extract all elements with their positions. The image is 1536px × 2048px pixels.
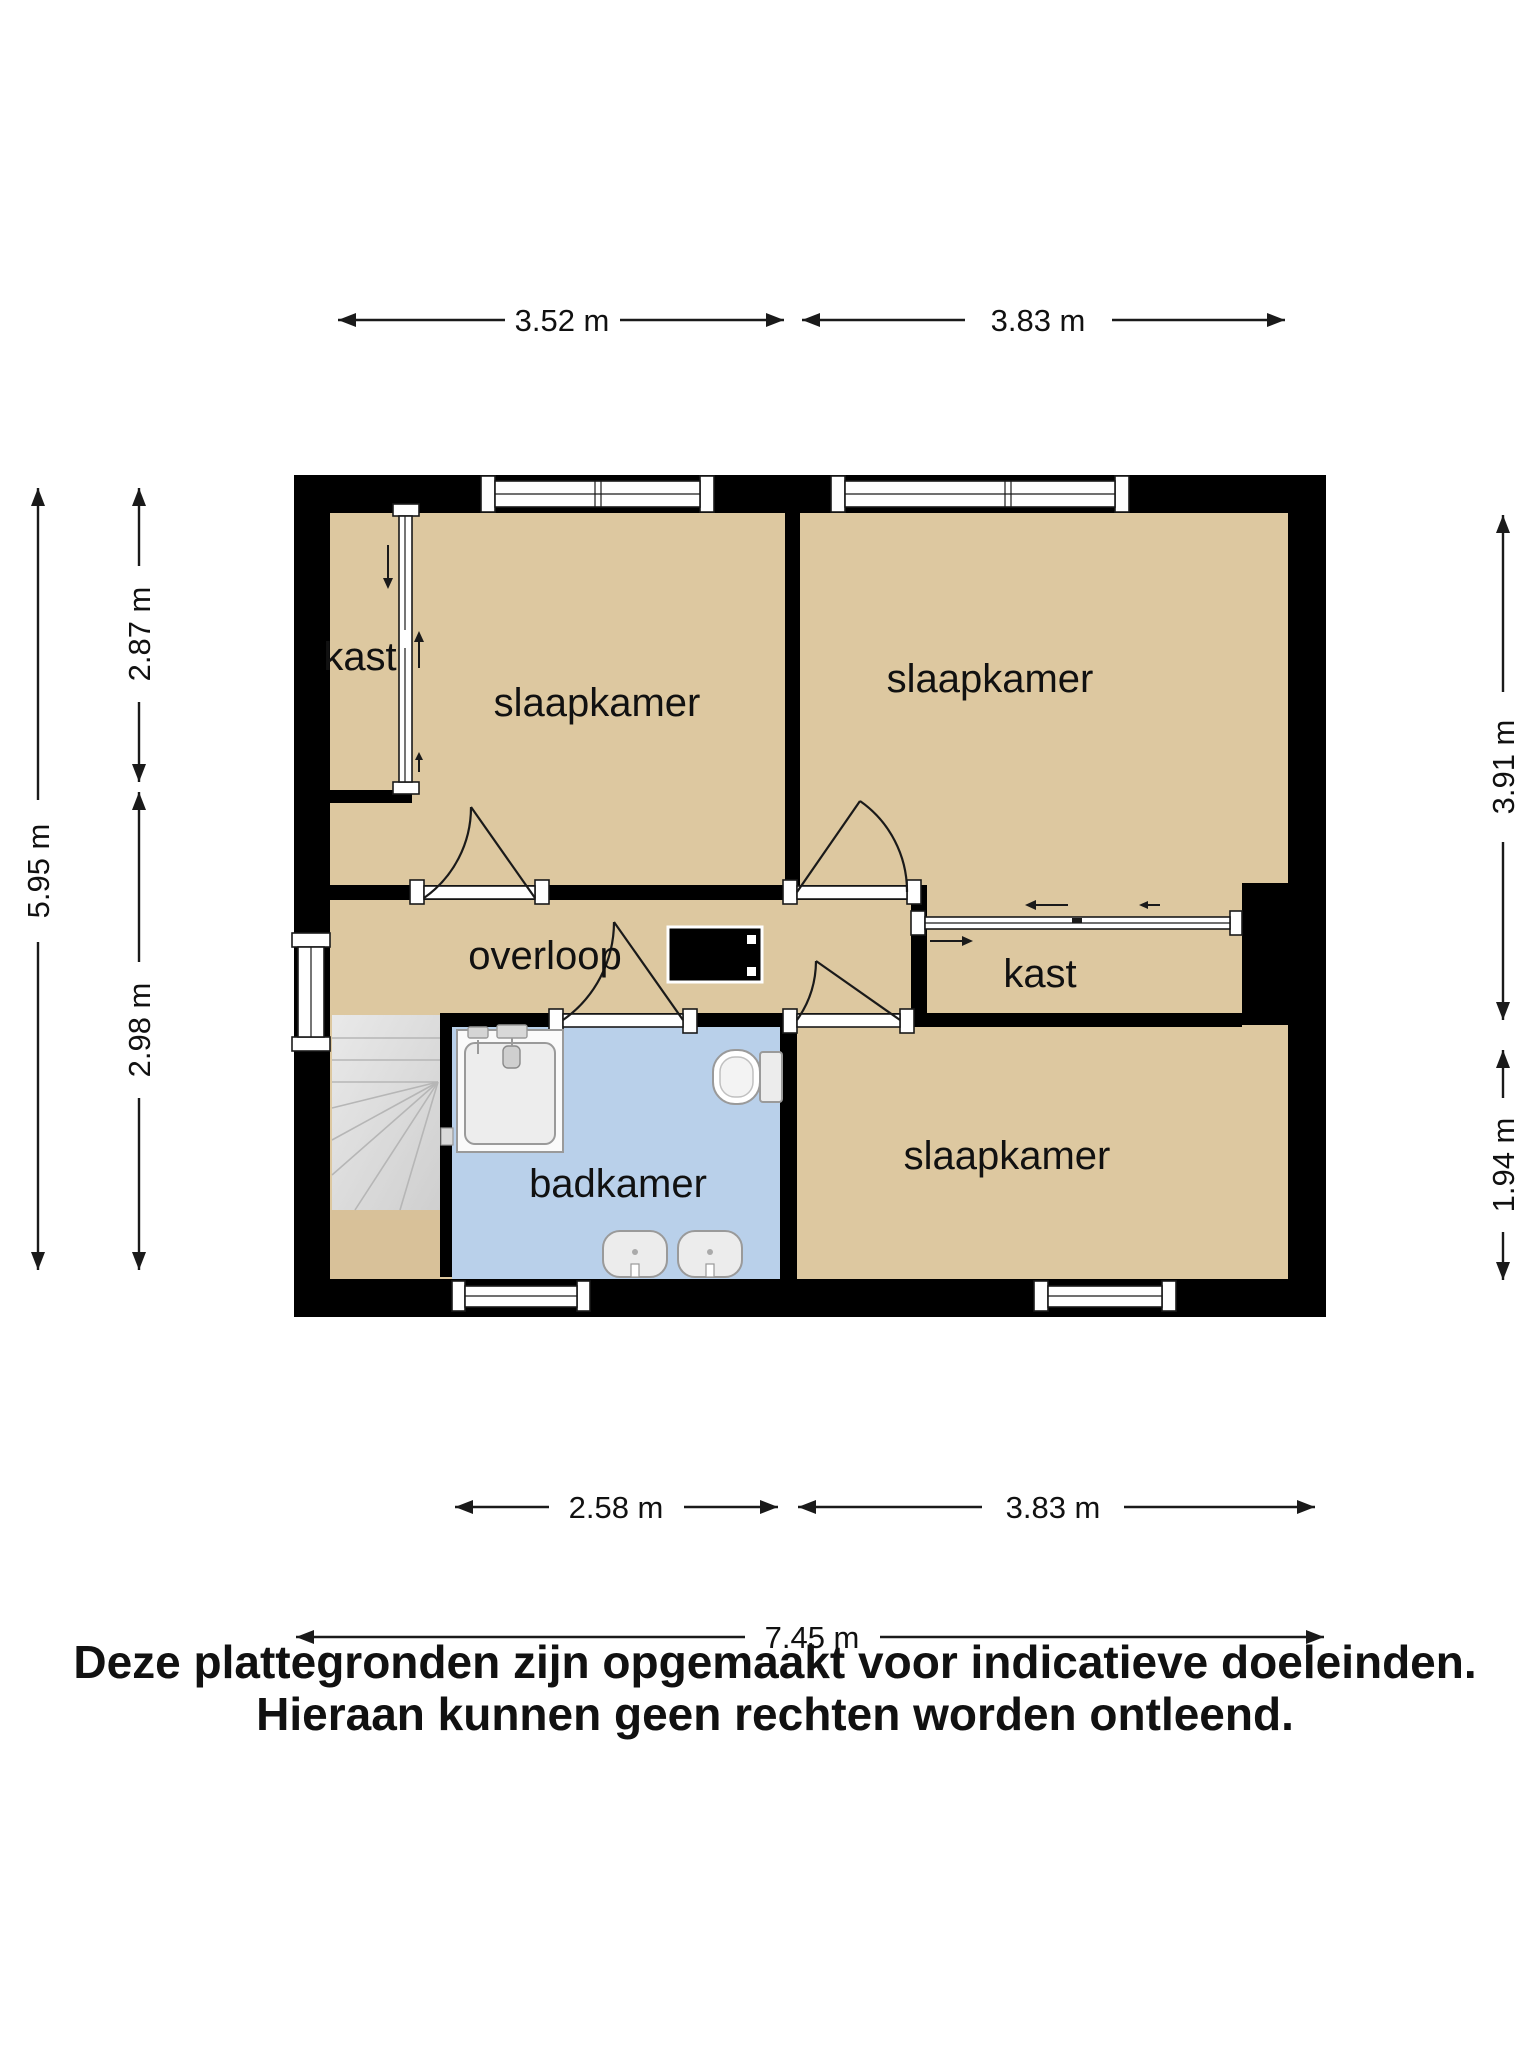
- dimension-label: 3.83 m: [991, 303, 1086, 338]
- sink-right: [678, 1231, 742, 1277]
- dimension-top-1: 3.52 m: [338, 303, 784, 338]
- wall-between-top-bedrooms: [785, 513, 800, 885]
- disclaimer-line-2: Hieraan kunnen geen rechten worden ontle…: [256, 1688, 1294, 1740]
- room-label-slaapkamer-bottom-right: slaapkamer: [904, 1134, 1111, 1178]
- dimension-label: 5.95 m: [21, 824, 56, 919]
- window-left-wall: [292, 933, 330, 1051]
- window-top-left-bedroom: [481, 476, 714, 512]
- dimension-label: 3.91 m: [1486, 720, 1521, 815]
- wall-top: [294, 475, 1326, 513]
- utility-box: [668, 927, 762, 982]
- sink-faucet-icon: [631, 1264, 639, 1277]
- dimension-right-2: 1.94 m: [1486, 1050, 1521, 1280]
- room-label-overloop: overloop: [468, 934, 621, 978]
- room-label-slaapkamer-top-left: slaapkamer: [494, 681, 701, 725]
- shower-valve-icon: [441, 1128, 453, 1145]
- under-stairs-floor: [330, 1210, 440, 1279]
- shower-mixer-icon: [497, 1025, 527, 1038]
- dimension-label: 2.98 m: [122, 983, 157, 1078]
- room-label-slaapkamer-top-right: slaapkamer: [887, 657, 1094, 701]
- dimension-label: 3.83 m: [1006, 1490, 1101, 1525]
- stairs-area: [332, 1015, 440, 1210]
- shower: [441, 1025, 563, 1152]
- sink-left: [603, 1231, 667, 1277]
- dimension-bottom-2: 3.83 m: [798, 1490, 1315, 1525]
- dimension-label: 2.87 m: [122, 587, 157, 682]
- sink-faucet-icon: [706, 1264, 714, 1277]
- dimension-left-1: 2.87 m: [122, 488, 157, 782]
- window-top-right-bedroom: [831, 476, 1129, 512]
- sliding-door-overlap-tick: [1072, 918, 1082, 923]
- dimension-label: 1.94 m: [1486, 1118, 1521, 1213]
- dimension-label: 3.52 m: [515, 303, 610, 338]
- toilet: [713, 1050, 782, 1104]
- dimension-top-2: 3.83 m: [802, 303, 1285, 338]
- disclaimer-line-1: Deze plattegronden zijn opgemaakt voor i…: [73, 1636, 1476, 1688]
- dimension-right-1: 3.91 m: [1486, 515, 1521, 1020]
- wall-right-kast-chunk: [1242, 883, 1326, 1025]
- room-label-badkamer: badkamer: [529, 1162, 707, 1206]
- wall-left: [294, 475, 330, 1317]
- dimension-bottom-1: 2.58 m: [455, 1490, 778, 1525]
- shower-tap-icon: [468, 1027, 488, 1038]
- shower-head-icon: [503, 1046, 520, 1068]
- dimension-label: 2.58 m: [569, 1490, 664, 1525]
- room-label-kast-top-left: kast: [323, 635, 396, 679]
- disclaimer: Deze plattegronden zijn opgemaakt voor i…: [73, 1636, 1476, 1740]
- window-bathroom: [452, 1281, 590, 1311]
- dimension-left-total: 5.95 m: [21, 488, 56, 1270]
- room-label-kast-right: kast: [1003, 952, 1076, 996]
- window-bottom-bedroom: [1034, 1281, 1176, 1311]
- dimension-left-2: 2.98 m: [122, 792, 157, 1270]
- floor-plan-canvas: kast slaapkamer slaapkamer overloop kast…: [0, 0, 1536, 2048]
